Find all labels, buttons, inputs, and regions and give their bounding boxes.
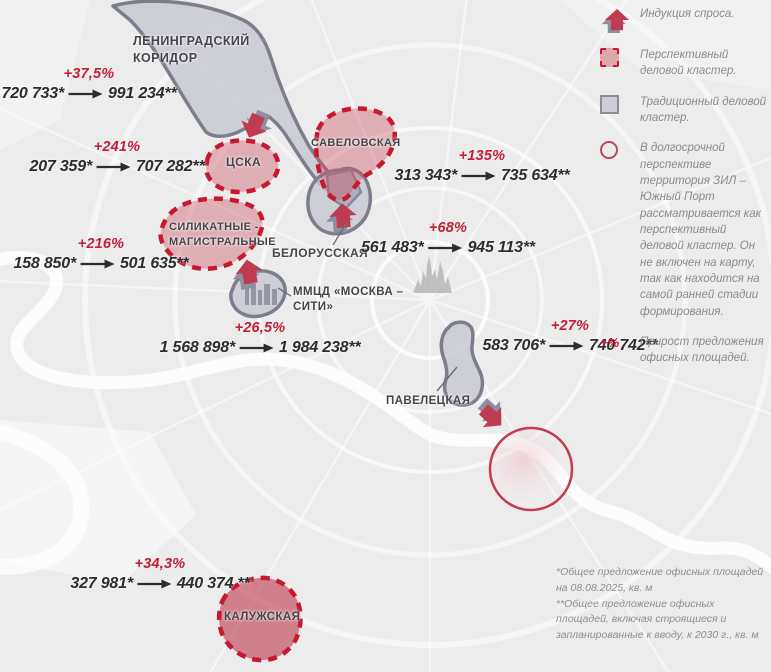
footnote-future-supply: **Общее предложение офисных площадей, вк… bbox=[556, 597, 768, 644]
stat-to: 945 113** bbox=[468, 239, 535, 257]
stat-from: 158 850* bbox=[14, 255, 76, 273]
stat-moscow-city: +26,5% 1 568 898*1 984 238** bbox=[160, 320, 361, 357]
stat-from: 313 343* bbox=[395, 167, 457, 185]
legend-item-zil-note: В долгосрочной перспективе территория ЗИ… bbox=[600, 140, 768, 320]
stat-percent: +26,5% bbox=[160, 320, 361, 336]
legend-item-demand: Индукция спроса. bbox=[600, 6, 768, 33]
flow-arrow-icon bbox=[69, 89, 103, 99]
flow-arrow-icon bbox=[138, 579, 172, 589]
stat-percent: +241% bbox=[30, 139, 205, 155]
stat-cska: +241% 207 359*707 282** bbox=[30, 139, 205, 176]
stat-percent: +37,5% bbox=[2, 66, 177, 82]
flow-arrow-icon bbox=[429, 243, 463, 253]
stat-to: 991 234** bbox=[108, 85, 177, 103]
legend-label: Индукция спроса. bbox=[640, 6, 768, 22]
flow-arrow-icon bbox=[81, 259, 115, 269]
stat-percent: +216% bbox=[14, 236, 189, 252]
stat-from: 561 483* bbox=[361, 239, 423, 257]
stat-to: 1 984 238** bbox=[279, 339, 360, 357]
stat-percent: +135% bbox=[395, 148, 570, 164]
legend-label: Прирост предложения офисных площадей. bbox=[640, 334, 768, 367]
flow-arrow-icon bbox=[240, 343, 274, 353]
flow-arrow-icon bbox=[97, 162, 131, 172]
cluster-label-savelovskaya: САВЕЛОВСКАЯ bbox=[311, 136, 401, 151]
stat-silikatnye-magistralnye: +216% 158 850*501 635** bbox=[14, 236, 189, 273]
stat-to: 501 635** bbox=[120, 255, 189, 273]
legend-item-traditional: Традиционный деловой кластер. bbox=[600, 94, 768, 127]
stat-percent: +68% bbox=[361, 220, 535, 236]
stat-kaluzhskaya: +34,3% 327 981*440 374 ** bbox=[70, 556, 249, 593]
legend-item-perspective: Перспективный деловой кластер. bbox=[600, 47, 768, 80]
legend: Индукция спроса. Перспективный деловой к… bbox=[600, 6, 768, 381]
flow-arrow-icon bbox=[550, 341, 584, 351]
plus-percent-icon: +% bbox=[600, 335, 619, 350]
cluster-label-kaluzhskaya: КАЛУЖСКАЯ bbox=[224, 610, 300, 625]
circle-outline-icon bbox=[600, 141, 618, 159]
demand-arrow-icon bbox=[600, 7, 634, 33]
dashed-square-icon bbox=[600, 48, 619, 67]
gray-square-icon bbox=[600, 95, 619, 114]
cluster-label-leningradsky-corridor: ЛЕНИНГРАДСКИЙ КОРИДОР bbox=[133, 33, 255, 67]
stat-from: 1 568 898* bbox=[160, 339, 235, 357]
infographic-canvas: ЛЕНИНГРАДСКИЙ КОРИДОР ЦСКА САВЕЛОВСКАЯ С… bbox=[0, 0, 771, 672]
flow-arrow-icon bbox=[462, 171, 496, 181]
cluster-label-cska: ЦСКА bbox=[226, 155, 261, 170]
stat-from: 327 981* bbox=[70, 575, 132, 593]
stat-to: 735 634** bbox=[501, 167, 570, 185]
stat-from: 583 706* bbox=[483, 337, 545, 355]
stat-from: 720 733* bbox=[2, 85, 64, 103]
legend-label: Перспективный деловой кластер. bbox=[640, 47, 768, 80]
footnotes: *Общее предложение офисных площадей на 0… bbox=[556, 565, 768, 644]
zil-yuzhny-port-circle bbox=[490, 428, 572, 510]
legend-item-growth: +% Прирост предложения офисных площадей. bbox=[600, 334, 768, 367]
footnote-current-supply: *Общее предложение офисных площадей на 0… bbox=[556, 565, 768, 597]
stat-to: 440 374 ** bbox=[177, 575, 250, 593]
cluster-label-moscow-city: ММЦД «МОСКВА – СИТИ» bbox=[293, 285, 405, 315]
legend-label: В долгосрочной перспективе территория ЗИ… bbox=[640, 140, 768, 320]
stat-from: 207 359* bbox=[30, 158, 92, 176]
legend-label: Традиционный деловой кластер. bbox=[640, 94, 768, 127]
cluster-label-belorusskaya: БЕЛОРУССКАЯ bbox=[272, 246, 368, 261]
stat-belorusskaya: +68% 561 483*945 113** bbox=[361, 220, 535, 257]
stat-leningradsky-corridor: +37,5% 720 733*991 234** bbox=[2, 66, 177, 103]
stat-percent: +34,3% bbox=[70, 556, 249, 572]
cluster-label-paveletskaya: ПАВЕЛЕЦКАЯ bbox=[386, 394, 470, 409]
stat-savelovskaya: +135% 313 343*735 634** bbox=[395, 148, 570, 185]
stat-to: 707 282** bbox=[136, 158, 205, 176]
